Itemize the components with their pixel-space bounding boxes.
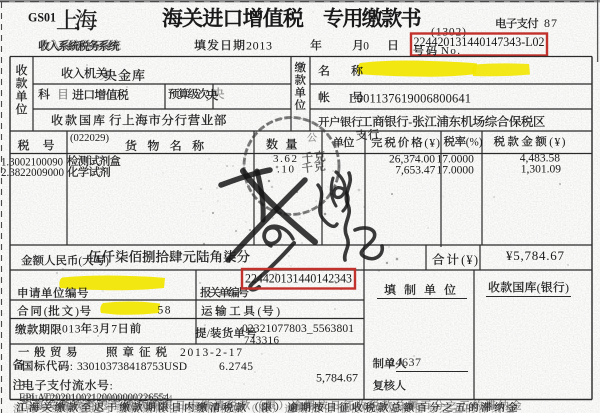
svg-text:330103738418753USD: 330103738418753USD — [77, 361, 187, 373]
svg-text:224420131440142343: 224420131440142343 — [245, 272, 352, 286]
svg-text:6.2745: 6.2745 — [219, 361, 253, 373]
svg-text:(: ( — [78, 256, 82, 268]
svg-text:¥5,784.67: ¥5,784.67 — [506, 248, 565, 263]
svg-text:5,784.67: 5,784.67 — [316, 371, 358, 385]
svg-text:): ) — [276, 306, 280, 318]
svg-text:(¥): (¥) — [549, 137, 565, 149]
svg-text:2013: 2013 — [246, 39, 272, 53]
svg-text:2.3822009000: 2.3822009000 — [1, 167, 64, 179]
svg-text:3: 3 — [93, 324, 99, 336]
svg-text:(022029): (022029) — [70, 132, 109, 144]
svg-text:24637: 24637 — [389, 355, 421, 369]
svg-text::: : — [70, 361, 73, 373]
svg-text:02321077803_5563801: 02321077803_5563801 — [242, 323, 354, 335]
svg-text:(: ( — [537, 281, 541, 295]
svg-text:1,301.09: 1,301.09 — [521, 164, 561, 176]
svg-text:): ) — [75, 306, 79, 318]
svg-text::: : — [110, 379, 113, 393]
svg-text:224420131440147343-L02: 224420131440147343-L02 — [414, 34, 545, 49]
svg-text:(¥): (¥) — [424, 138, 440, 150]
svg-text:No.: No. — [441, 45, 460, 57]
svg-text:743316: 743316 — [244, 335, 280, 347]
svg-text:(: ( — [258, 306, 262, 318]
svg-text:.10: .10 — [277, 164, 295, 176]
svg-text:-: - — [408, 115, 412, 129]
svg-text:(: ( — [44, 306, 48, 318]
svg-text:58: 58 — [158, 305, 171, 317]
svg-text:013: 013 — [62, 324, 81, 336]
svg-text:GS01: GS01 — [28, 10, 56, 25]
svg-text:0: 0 — [363, 39, 369, 53]
svg-text:): ) — [565, 281, 569, 295]
svg-text:87: 87 — [544, 16, 557, 30]
svg-text:(¥): (¥) — [461, 253, 478, 267]
svg-text:2013-2-17: 2013-2-17 — [180, 347, 242, 359]
svg-text:L001137619006800641: L001137619006800641 — [349, 92, 471, 106]
svg-text:7,653.47: 7,653.47 — [395, 165, 435, 177]
svg-text:(%): (%) — [466, 137, 483, 149]
svg-text:17.0000: 17.0000 — [437, 165, 475, 177]
svg-text:): ) — [105, 256, 109, 268]
svg-text:7: 7 — [111, 324, 117, 336]
